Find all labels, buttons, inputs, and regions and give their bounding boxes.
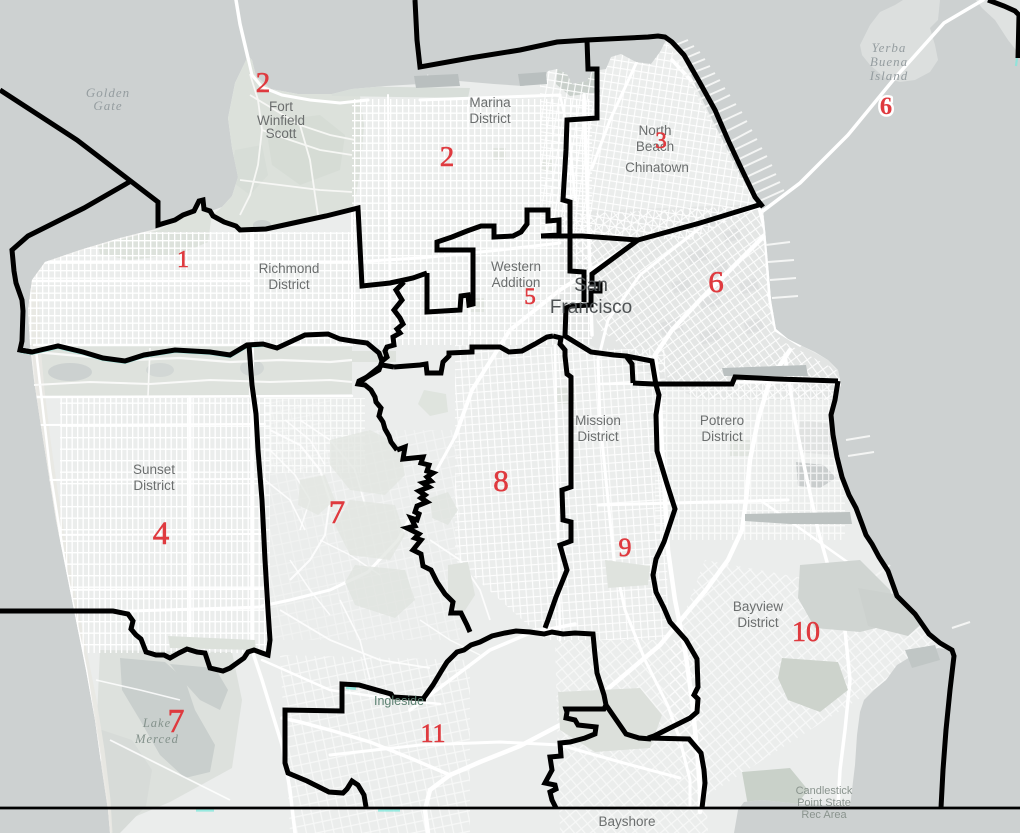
svg-text:6: 6 (708, 264, 724, 299)
svg-text:Sunset: Sunset (133, 462, 175, 477)
svg-text:8: 8 (493, 463, 509, 498)
svg-text:Chinatown: Chinatown (625, 160, 689, 175)
svg-text:7: 7 (168, 703, 185, 740)
svg-text:District: District (469, 111, 510, 126)
svg-text:10: 10 (792, 617, 820, 648)
svg-text:Richmond: Richmond (259, 261, 320, 276)
svg-text:11: 11 (420, 719, 445, 748)
svg-text:Yerba: Yerba (872, 40, 907, 55)
svg-text:3: 3 (655, 128, 667, 153)
svg-text:4: 4 (153, 516, 170, 552)
svg-text:District: District (268, 277, 309, 292)
svg-text:Scott: Scott (266, 126, 297, 141)
svg-text:Bayview: Bayview (733, 599, 784, 614)
svg-text:Ingleside: Ingleside (374, 694, 424, 708)
svg-text:6: 6 (880, 93, 893, 120)
svg-text:2: 2 (440, 141, 455, 173)
svg-text:Point State: Point State (797, 797, 851, 809)
svg-text:Island: Island (869, 68, 909, 83)
svg-text:Western: Western (491, 259, 541, 274)
svg-text:District: District (701, 429, 742, 444)
svg-text:2: 2 (256, 67, 271, 99)
svg-text:Mission: Mission (575, 413, 621, 428)
svg-text:Francisco: Francisco (550, 297, 632, 318)
svg-text:Potrero: Potrero (700, 413, 744, 428)
svg-text:7: 7 (329, 495, 346, 531)
svg-text:5: 5 (524, 284, 536, 309)
svg-text:District: District (577, 429, 618, 444)
svg-text:San: San (574, 275, 608, 296)
svg-text:Bayshore: Bayshore (598, 814, 655, 829)
svg-text:District: District (737, 615, 778, 630)
svg-text:Fort: Fort (269, 99, 293, 114)
svg-text:Marina: Marina (469, 95, 511, 110)
svg-text:1: 1 (177, 247, 189, 273)
svg-text:Candlestick: Candlestick (796, 785, 853, 797)
svg-text:Rec Area: Rec Area (801, 809, 847, 821)
svg-text:District: District (133, 478, 174, 493)
svg-text:Buena: Buena (870, 54, 908, 69)
svg-text:9: 9 (619, 533, 632, 562)
svg-text:Gate: Gate (93, 98, 122, 113)
